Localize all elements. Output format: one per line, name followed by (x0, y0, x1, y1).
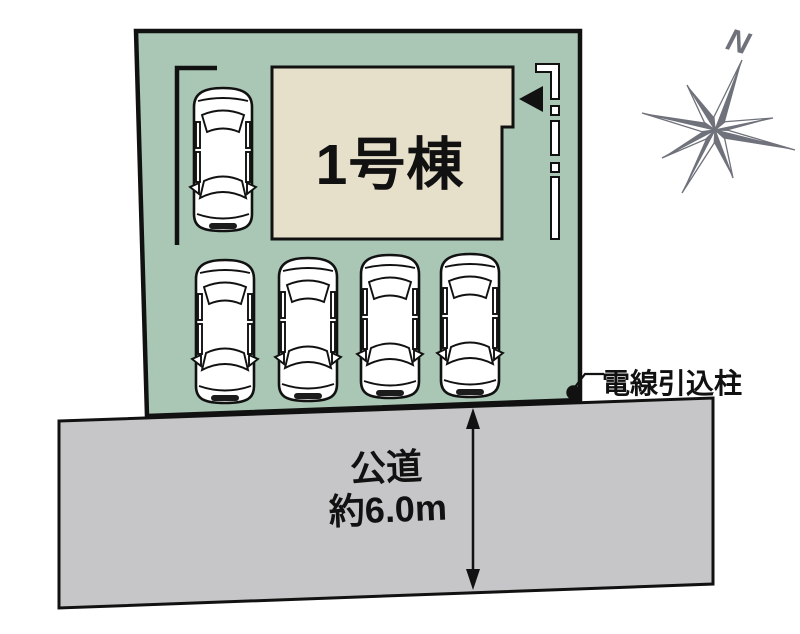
boundary-dash (551, 121, 559, 155)
car-4 (357, 255, 423, 398)
car-3 (275, 258, 341, 401)
power-pole-dot (566, 385, 580, 399)
site-plan-drawing (0, 0, 800, 634)
compass-point (714, 60, 742, 130)
boundary-dash (551, 177, 559, 239)
compass-rose-icon (642, 60, 795, 193)
road-width-value: 約6.0m (287, 485, 489, 535)
boundary-dot (551, 163, 559, 172)
building-label: 1号棟 (277, 119, 503, 201)
boundary-dot (551, 106, 559, 115)
car-2 (192, 260, 258, 403)
car-5 (437, 254, 503, 397)
road-label: 公道 約6.0m (285, 443, 488, 535)
power-pole-label: 電線引込柱 (602, 362, 742, 402)
site-plan-canvas: 1号棟 電線引込柱 公道 約6.0m N (0, 0, 800, 634)
car-1 (190, 88, 256, 231)
